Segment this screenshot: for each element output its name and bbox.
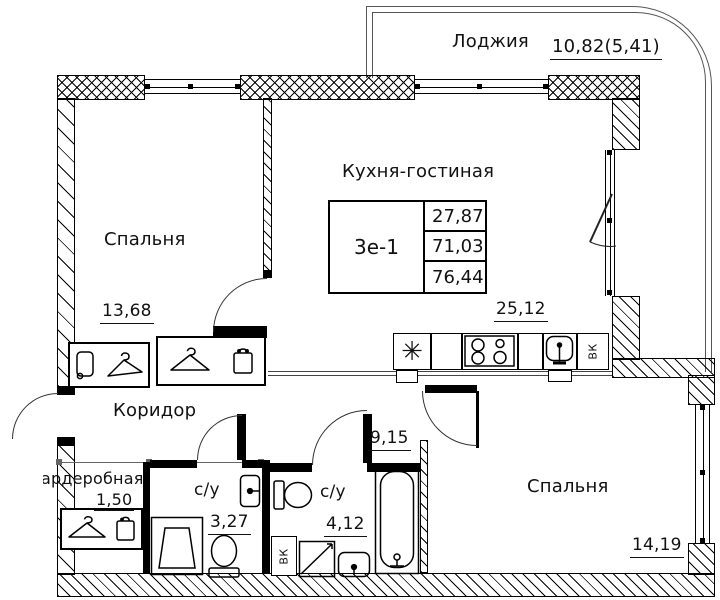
wall-bathroom2-north-a [270, 463, 312, 472]
loggia-glazing-left-2 [372, 12, 373, 78]
room-area-bathroom2: 4,12 [324, 515, 367, 537]
fridge-icon: ✳ [401, 339, 423, 365]
room-label-loggia: Лоджия [452, 32, 529, 53]
built-in-wardrobe-2 [156, 336, 266, 386]
room-label-bathroom2: с/у [320, 483, 346, 503]
wall-bottom [57, 573, 715, 597]
loggia-glazing-left [366, 6, 367, 78]
entrance-door-arc [12, 393, 58, 439]
wall-kitchen-se-column [612, 296, 640, 360]
hanger-icon [102, 350, 146, 380]
kitchen-balcony-mullion [607, 290, 612, 295]
bedroom2-window-mullion [700, 538, 705, 543]
bedroom1-window-mullion [235, 84, 240, 89]
wall-bathroom1-north-a [150, 460, 197, 468]
wall-top-left [57, 75, 145, 100]
fridge: ✳ [393, 333, 431, 370]
toilet-icon [206, 534, 242, 580]
room-label-kitchen: Кухня-гостиная [342, 162, 494, 183]
room-label-bedroom2: Спальня [527, 477, 608, 498]
room-area-bathroom1: 3,27 [208, 513, 251, 535]
hanger-icon [65, 515, 109, 543]
room-area-loggia: 10,82(5,41) [550, 37, 662, 60]
bedroom1-window-mullion [188, 84, 193, 89]
bedroom1-window-mullion [145, 84, 150, 89]
hanger-icon [167, 346, 213, 376]
room-area-corridor: 9,15 [368, 429, 411, 451]
boundary-node [56, 459, 62, 465]
room-area-bedroom2: 14,19 [630, 536, 684, 558]
bathtub-icon [374, 465, 420, 575]
shower-tray-icon [150, 516, 204, 576]
apartment-info-table: 3е-1 27,87 71,03 76,44 [328, 200, 487, 294]
room-area-wardrobe-room: 1,50 [94, 491, 134, 511]
storage-box-icon [230, 345, 256, 377]
stove [462, 333, 518, 370]
kitchen-cabinet [431, 333, 462, 370]
wall-bedroom1-kitchen [263, 98, 272, 278]
kitchen-cabinet-2 [518, 333, 543, 370]
counter-stub [396, 370, 418, 383]
built-in-wardrobe-1 [68, 342, 150, 388]
wall-cap [263, 270, 272, 278]
floor-plan: ✳ ВК [0, 0, 720, 600]
bathroom1-door-arc [197, 415, 242, 460]
kitchen-window-mullion [477, 84, 482, 89]
room-label-corridor: Коридор [113, 401, 196, 422]
stove-icon [463, 334, 516, 368]
toilet-icon [272, 477, 314, 513]
room-label-bathroom1: с/у [194, 481, 220, 501]
wall-bedroom2-ne-column [688, 375, 715, 405]
balcony-door-leaf [580, 190, 620, 252]
bedroom2-window-mullion [700, 405, 705, 410]
wall-bathroom1-north-b [242, 460, 262, 468]
kitchen-sink [543, 333, 577, 370]
bedroom2-door-arc [422, 391, 477, 446]
kitchen-balcony-mullion [607, 150, 612, 155]
apartment-type: 3е-1 [330, 202, 425, 292]
wall-top-middle [240, 75, 415, 100]
wall-bedroom2-se-column [688, 543, 715, 575]
bathroom2-door-arc [312, 410, 367, 465]
apartment-area-value: 71,03 [425, 232, 485, 262]
wall-bedroom2-west [420, 440, 428, 573]
room-label-bedroom1: Спальня [104, 230, 185, 251]
bedroom1-door-arc [213, 278, 267, 332]
wall-bathrooms-divider [262, 460, 270, 573]
storage-box-icon [114, 514, 138, 544]
wall-top-right [548, 75, 640, 100]
shaft-label: ВК [277, 548, 290, 564]
washbasin-icon [239, 474, 261, 508]
shaft-label: ВК [586, 343, 599, 359]
room-area-kitchen: 25,12 [494, 300, 548, 322]
wardrobe-room-closet [60, 508, 143, 550]
total-area-value: 76,44 [425, 262, 485, 292]
kitchen-window-mullion [543, 84, 548, 89]
kitchen-shaft: ВК [577, 333, 609, 370]
kitchen-window-mullion [415, 84, 420, 89]
entrance-jamb-top [57, 387, 75, 395]
cabinet-icon [73, 349, 97, 381]
living-area-value: 27,87 [425, 202, 485, 232]
wall-kitchen-ne-column [612, 98, 640, 150]
bathroom-shaft: ВК [271, 536, 297, 576]
entrance-jamb-bottom [57, 437, 75, 445]
washing-machine-icon [298, 540, 336, 578]
room-area-bedroom1: 13,68 [100, 302, 154, 324]
washbasin-icon [337, 551, 371, 578]
kitchen-sink-icon [544, 334, 575, 368]
bedroom2-window-mullion [700, 470, 705, 475]
room-label-wardrobe-room: Гардеробная [43, 469, 157, 488]
counter-stub-2 [548, 370, 572, 382]
